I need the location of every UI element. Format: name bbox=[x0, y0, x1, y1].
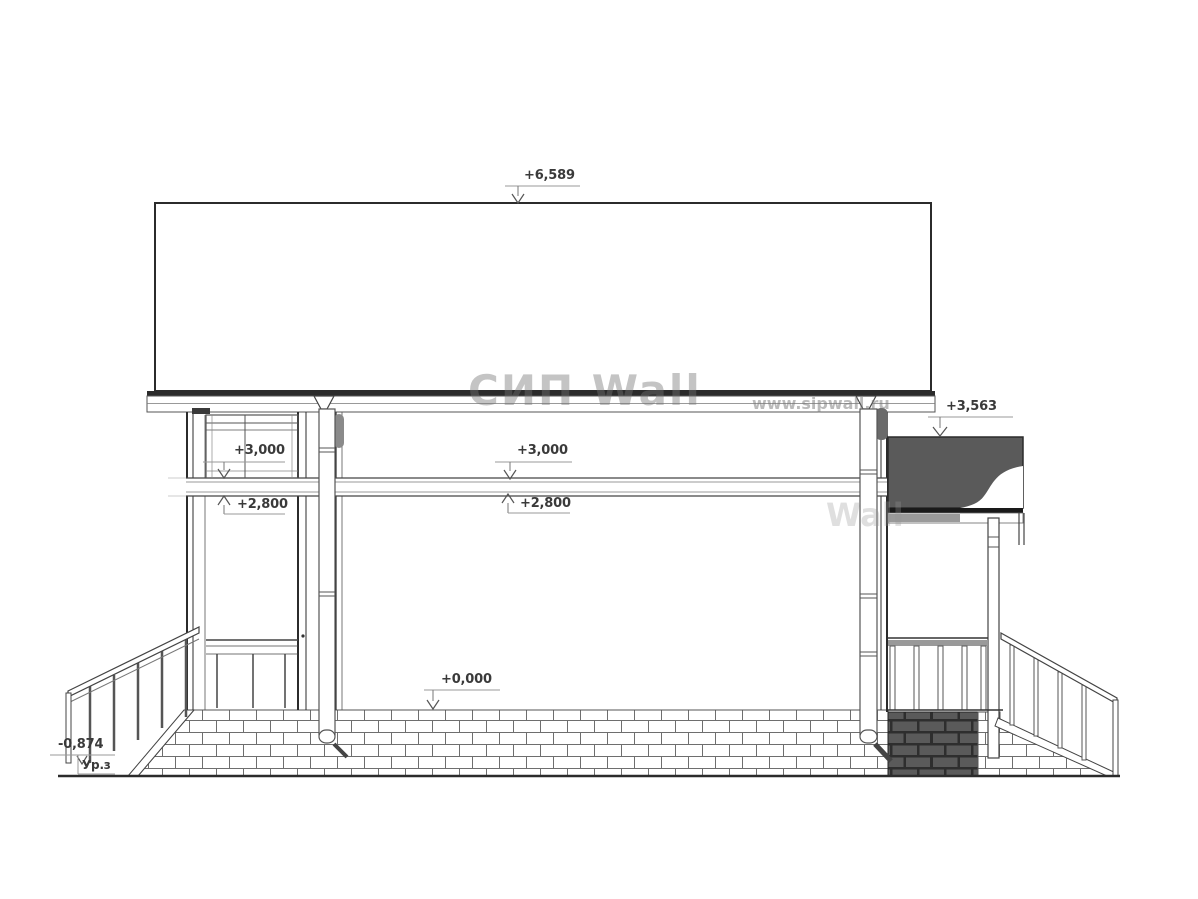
elevation-drawing bbox=[0, 0, 1198, 899]
level-center-upper-label: +3,000 bbox=[517, 443, 568, 458]
left-downspout bbox=[319, 409, 347, 757]
level-ground-label: -0,874 bbox=[58, 737, 103, 752]
dark-plinth bbox=[888, 712, 978, 776]
ramp-end-post bbox=[66, 693, 71, 763]
level-ridge-label: +6,589 bbox=[524, 168, 575, 183]
stair-end-post bbox=[1113, 700, 1118, 776]
level-left-upper-label: +3,000 bbox=[234, 443, 285, 458]
elevation-sheet: СИП Wall www.sipwall.ru Wall +6,589 +3,0… bbox=[0, 0, 1198, 899]
fascia-board bbox=[147, 396, 935, 412]
floor-slab bbox=[168, 478, 887, 496]
level-zero-label: +0,000 bbox=[441, 672, 492, 687]
level-porch-roof-label: +3,563 bbox=[946, 399, 997, 414]
eave-edge bbox=[147, 391, 935, 396]
ground-level-mark: Ур.з bbox=[82, 758, 111, 772]
door-handle bbox=[301, 634, 304, 637]
ramp-handrail bbox=[68, 627, 199, 697]
left-annex-balustrade bbox=[206, 634, 305, 708]
main-roof bbox=[147, 203, 935, 412]
foundation-brickwork bbox=[138, 710, 1105, 776]
right-porch bbox=[888, 437, 1024, 758]
level-left-lower-label: +2,800 bbox=[237, 497, 288, 512]
level-center-lower-label: +2,800 bbox=[520, 496, 571, 511]
